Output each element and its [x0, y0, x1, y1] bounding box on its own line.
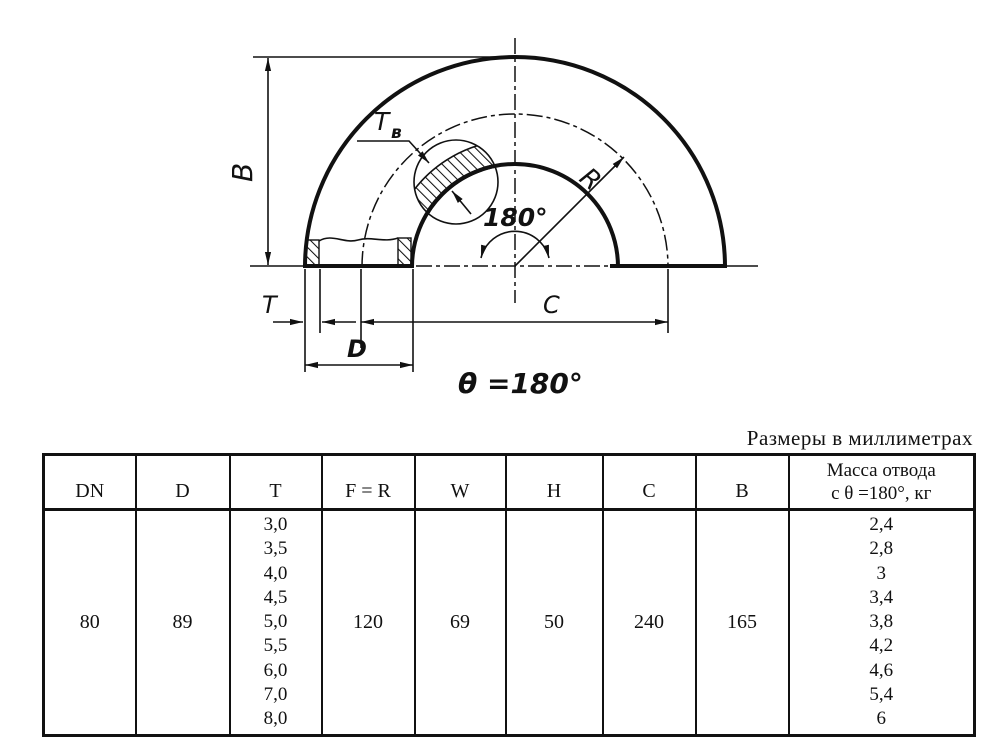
col-header-w: W: [415, 455, 506, 510]
elbow-180-drawing: B T в R 180° T D C θ =180°: [0, 0, 1000, 430]
technical-drawing-page: B T в R 180° T D C θ =180° Размеры в мил…: [0, 0, 1000, 743]
wall-section-outer: [306, 240, 319, 266]
cell-h: 50: [506, 510, 603, 736]
table-value: 5,5: [231, 634, 321, 658]
table-value: 6: [790, 707, 974, 731]
dimensions-table: DN D T F = R W H C B Масса отвода с θ =1…: [42, 453, 976, 737]
table-value: 3,4: [790, 586, 974, 610]
table-value: 7,0: [231, 683, 321, 707]
cell-fr: 120: [322, 510, 415, 736]
angle-label: 180°: [483, 203, 548, 232]
tv-leader-arrow: [357, 141, 429, 163]
tv-label-subscript: в: [391, 123, 402, 143]
table-value: 3: [790, 562, 974, 586]
left-end-section: [306, 238, 411, 266]
table-value: 5,4: [790, 683, 974, 707]
table-value: 8,0: [231, 707, 321, 731]
col-header-d: D: [136, 455, 230, 510]
col-header-mass: Масса отвода с θ =180°, кг: [789, 455, 975, 510]
bottom-dimensions: [273, 269, 668, 372]
col-header-mass-line1: Масса отвода: [790, 459, 974, 482]
table-row: 80 89 3,03,54,04,55,05,56,07,08,0 120 69…: [44, 510, 975, 736]
radius-label: R: [574, 162, 607, 197]
table-value: 4,6: [790, 659, 974, 683]
table-value: 2,4: [790, 513, 974, 537]
tv-thickness-arrow: [452, 191, 471, 214]
tv-label: T: [374, 107, 391, 136]
cell-t-values: 3,03,54,04,55,05,56,07,08,0: [230, 510, 322, 736]
table-value: 3,0: [231, 513, 321, 537]
table-value: 3,8: [790, 610, 974, 634]
d-dim-label: D: [347, 335, 367, 363]
col-header-dn: DN: [44, 455, 136, 510]
table-value: 6,0: [231, 659, 321, 683]
break-wavy-line: [319, 238, 398, 241]
table-value: 5,0: [231, 610, 321, 634]
col-header-fr: F = R: [322, 455, 415, 510]
theta-note: θ =180°: [458, 367, 583, 400]
wall-section-inner: [398, 238, 411, 266]
table-caption: Размеры в миллиметрах: [747, 426, 973, 451]
col-header-mass-line2: с θ =180°, кг: [790, 482, 974, 505]
t-dim-label: T: [262, 291, 279, 319]
cell-b: 165: [696, 510, 789, 736]
table-value: 4,0: [231, 562, 321, 586]
table-value: 4,2: [790, 634, 974, 658]
cell-mass-values: 2,42,833,43,84,24,65,46: [789, 510, 975, 736]
col-header-c: C: [603, 455, 696, 510]
cell-d: 89: [136, 510, 230, 736]
col-header-b: B: [696, 455, 789, 510]
col-header-t: T: [230, 455, 322, 510]
cell-w: 69: [415, 510, 506, 736]
col-header-h: H: [506, 455, 603, 510]
table-value: 2,8: [790, 537, 974, 561]
table-value: 4,5: [231, 586, 321, 610]
cell-dn: 80: [44, 510, 136, 736]
b-dim-label: B: [226, 163, 259, 182]
cell-c: 240: [603, 510, 696, 736]
table-value: 3,5: [231, 537, 321, 561]
header-row: DN D T F = R W H C B Масса отвода с θ =1…: [44, 455, 975, 510]
c-dim-label: C: [543, 291, 560, 319]
